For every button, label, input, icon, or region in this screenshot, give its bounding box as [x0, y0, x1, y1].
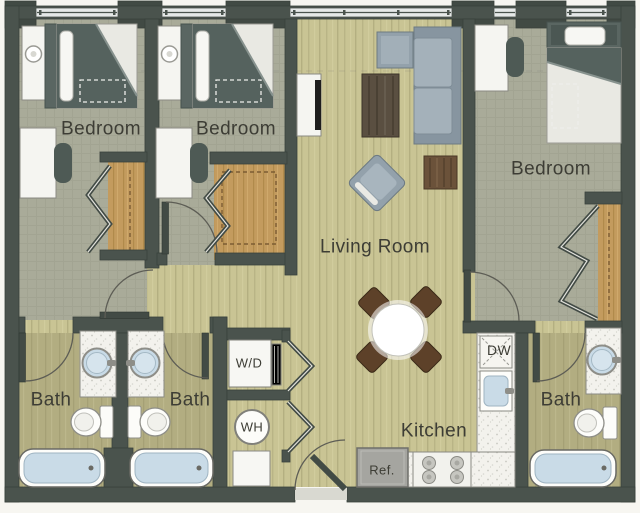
bedroom-left-door-panel — [100, 312, 149, 319]
tv — [315, 80, 321, 130]
pillow — [60, 31, 73, 101]
faucet — [505, 388, 514, 394]
label-dishwasher: DW — [487, 343, 511, 357]
bath-left-door-panel — [19, 333, 26, 382]
desk — [20, 128, 56, 198]
toilet — [128, 406, 170, 438]
stove — [413, 452, 471, 487]
sofa — [414, 27, 461, 144]
bath-middle-door-panel — [202, 333, 209, 379]
dining-table — [372, 304, 424, 356]
headboard — [45, 24, 57, 108]
pillow — [565, 27, 605, 45]
toilet — [574, 407, 617, 439]
room-label-bath-middle: Bath — [170, 391, 211, 410]
kitchen-sink — [480, 371, 514, 411]
bed-middle — [158, 24, 273, 108]
label-water-heater: WH — [241, 421, 263, 434]
coffee-table — [362, 74, 399, 137]
headboard — [181, 24, 193, 108]
desk — [475, 25, 508, 91]
bathtub — [530, 450, 616, 487]
desk-chair — [506, 37, 524, 77]
nightstand — [158, 26, 181, 100]
room-label-bedroom-left: Bedroom — [61, 120, 141, 139]
utility-unit — [272, 344, 281, 385]
desk-chair — [54, 143, 72, 183]
label-washer-dryer: W/D — [236, 357, 262, 370]
room-label-bedroom-right: Bedroom — [511, 160, 591, 179]
toilet — [71, 406, 113, 438]
room-label-living-room: Living Room — [320, 238, 430, 257]
utility-box — [233, 451, 270, 486]
floor-plan: Bedroom Bedroom Bedroom Living Room Kitc… — [0, 0, 640, 513]
bathtub — [130, 449, 213, 487]
bathtub — [19, 449, 105, 487]
pillow — [196, 31, 209, 101]
room-label-bath-right: Bath — [541, 391, 582, 410]
bedroom-middle-door-panel — [162, 202, 169, 254]
faucet — [126, 360, 135, 366]
room-label-kitchen: Kitchen — [401, 422, 467, 441]
room-label-bedroom-middle: Bedroom — [196, 120, 276, 139]
bed-left — [22, 24, 137, 108]
closet-left-floor — [108, 160, 147, 255]
side-table — [424, 156, 457, 189]
desk — [156, 128, 192, 198]
entry-threshold — [295, 488, 347, 500]
faucet — [612, 357, 621, 363]
bedroom-right-door-panel — [464, 270, 471, 322]
bath-right-door-panel — [533, 333, 540, 382]
desk-chair — [190, 143, 208, 183]
bed-right — [547, 22, 621, 143]
label-refrigerator: Ref. — [369, 464, 394, 477]
room-label-bath-left: Bath — [31, 391, 72, 410]
faucet — [107, 360, 116, 366]
nightstand — [22, 26, 45, 100]
